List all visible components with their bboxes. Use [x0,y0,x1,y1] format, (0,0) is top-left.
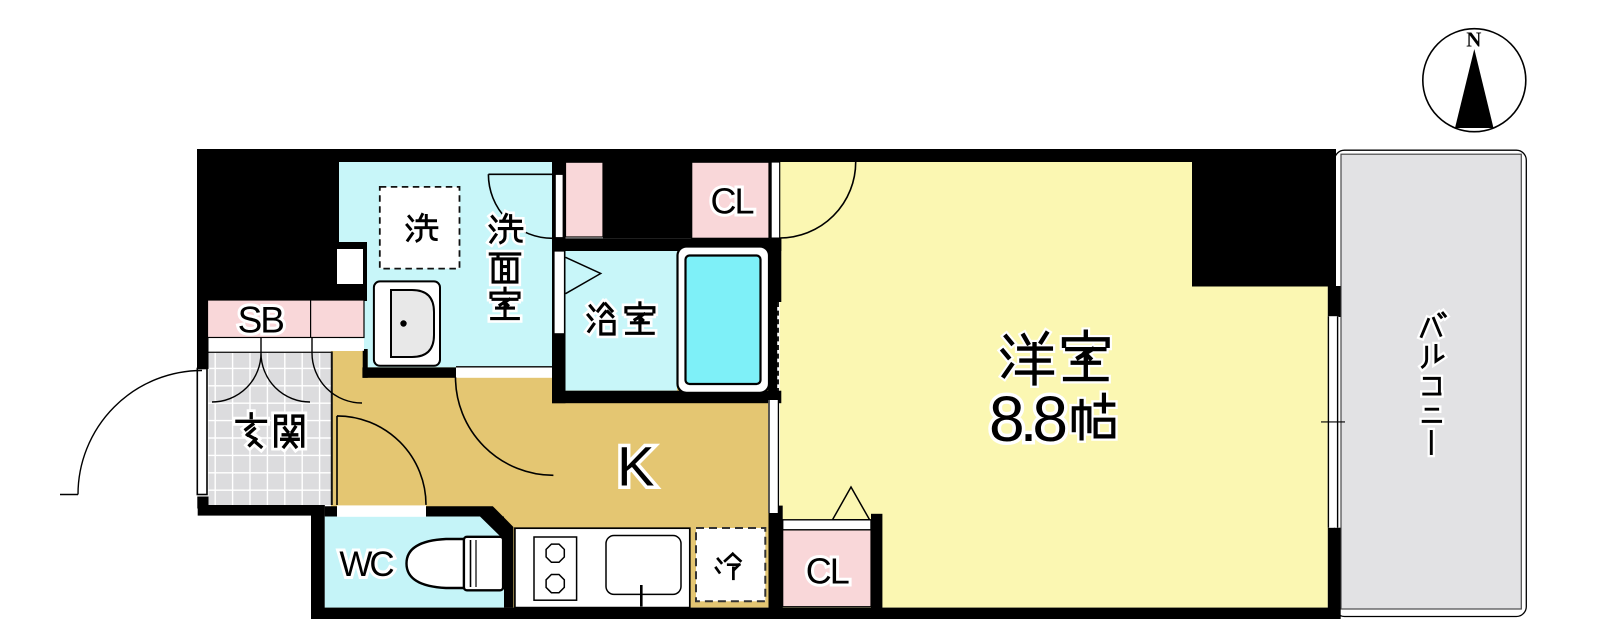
svg-text:CL: CL [806,550,849,591]
svg-text:SB: SB [238,299,284,340]
svg-text:N: N [1466,28,1481,52]
svg-text:K: K [617,435,654,498]
svg-text:CL: CL [710,181,753,222]
svg-text:8.8: 8.8 [989,383,1065,455]
svg-text:WC: WC [339,545,393,584]
